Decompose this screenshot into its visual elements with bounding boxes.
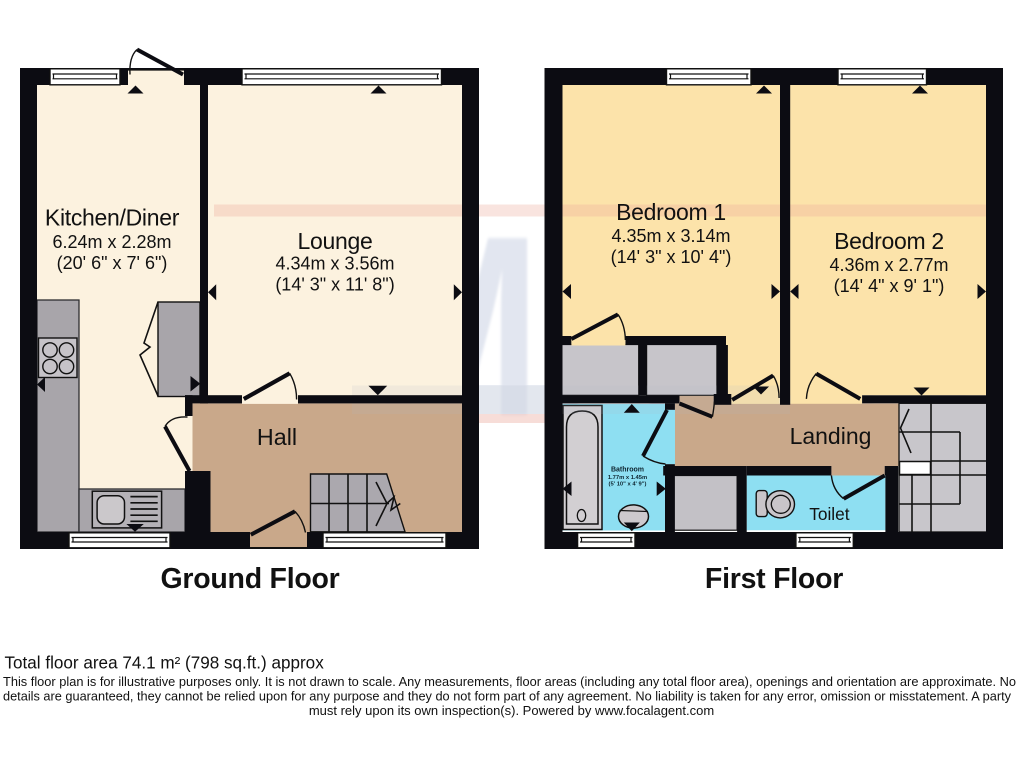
svg-text:Total floor area 74.1 m² (798: Total floor area 74.1 m² (798 sq.ft.) ap… xyxy=(5,654,325,673)
svg-text:4.35m x 3.14m: 4.35m x 3.14m xyxy=(611,226,730,246)
svg-text:Kitchen/Diner: Kitchen/Diner xyxy=(45,205,180,231)
svg-text:(20' 6" x 7' 6"): (20' 6" x 7' 6") xyxy=(57,253,168,273)
svg-text:Bedroom 2: Bedroom 2 xyxy=(834,228,944,254)
svg-text:6.24m x 2.28m: 6.24m x 2.28m xyxy=(52,232,171,252)
svg-text:Bathroom: Bathroom xyxy=(611,466,644,473)
svg-text:Ground Floor: Ground Floor xyxy=(160,563,339,595)
svg-text:must rely upon its own inspect: must rely upon its own inspection(s). Po… xyxy=(309,703,714,718)
svg-text:Hall: Hall xyxy=(257,424,297,450)
svg-text:4.36m x 2.77m: 4.36m x 2.77m xyxy=(829,255,948,275)
svg-text:(5' 10" x 4' 9"): (5' 10" x 4' 9") xyxy=(609,482,647,488)
svg-text:(14' 3" x 11' 8"): (14' 3" x 11' 8") xyxy=(275,275,394,295)
svg-text:(14' 3" x 10' 4"): (14' 3" x 10' 4") xyxy=(611,247,732,267)
svg-text:Landing: Landing xyxy=(790,423,872,449)
svg-text:Toilet: Toilet xyxy=(809,504,850,524)
svg-text:First Floor: First Floor xyxy=(705,563,843,595)
svg-text:Bedroom 1: Bedroom 1 xyxy=(616,199,726,225)
svg-text:1.77m x 1.45m: 1.77m x 1.45m xyxy=(608,475,647,481)
svg-text:(14' 4" x 9' 1"): (14' 4" x 9' 1") xyxy=(834,276,945,296)
svg-text:This floor plan is for illustr: This floor plan is for illustrative purp… xyxy=(3,674,1016,689)
svg-text:4.34m x 3.56m: 4.34m x 3.56m xyxy=(275,254,394,274)
svg-text:Lounge: Lounge xyxy=(298,228,373,254)
svg-text:details are guaranteed, they c: details are guaranteed, they cannot be r… xyxy=(3,689,1011,704)
